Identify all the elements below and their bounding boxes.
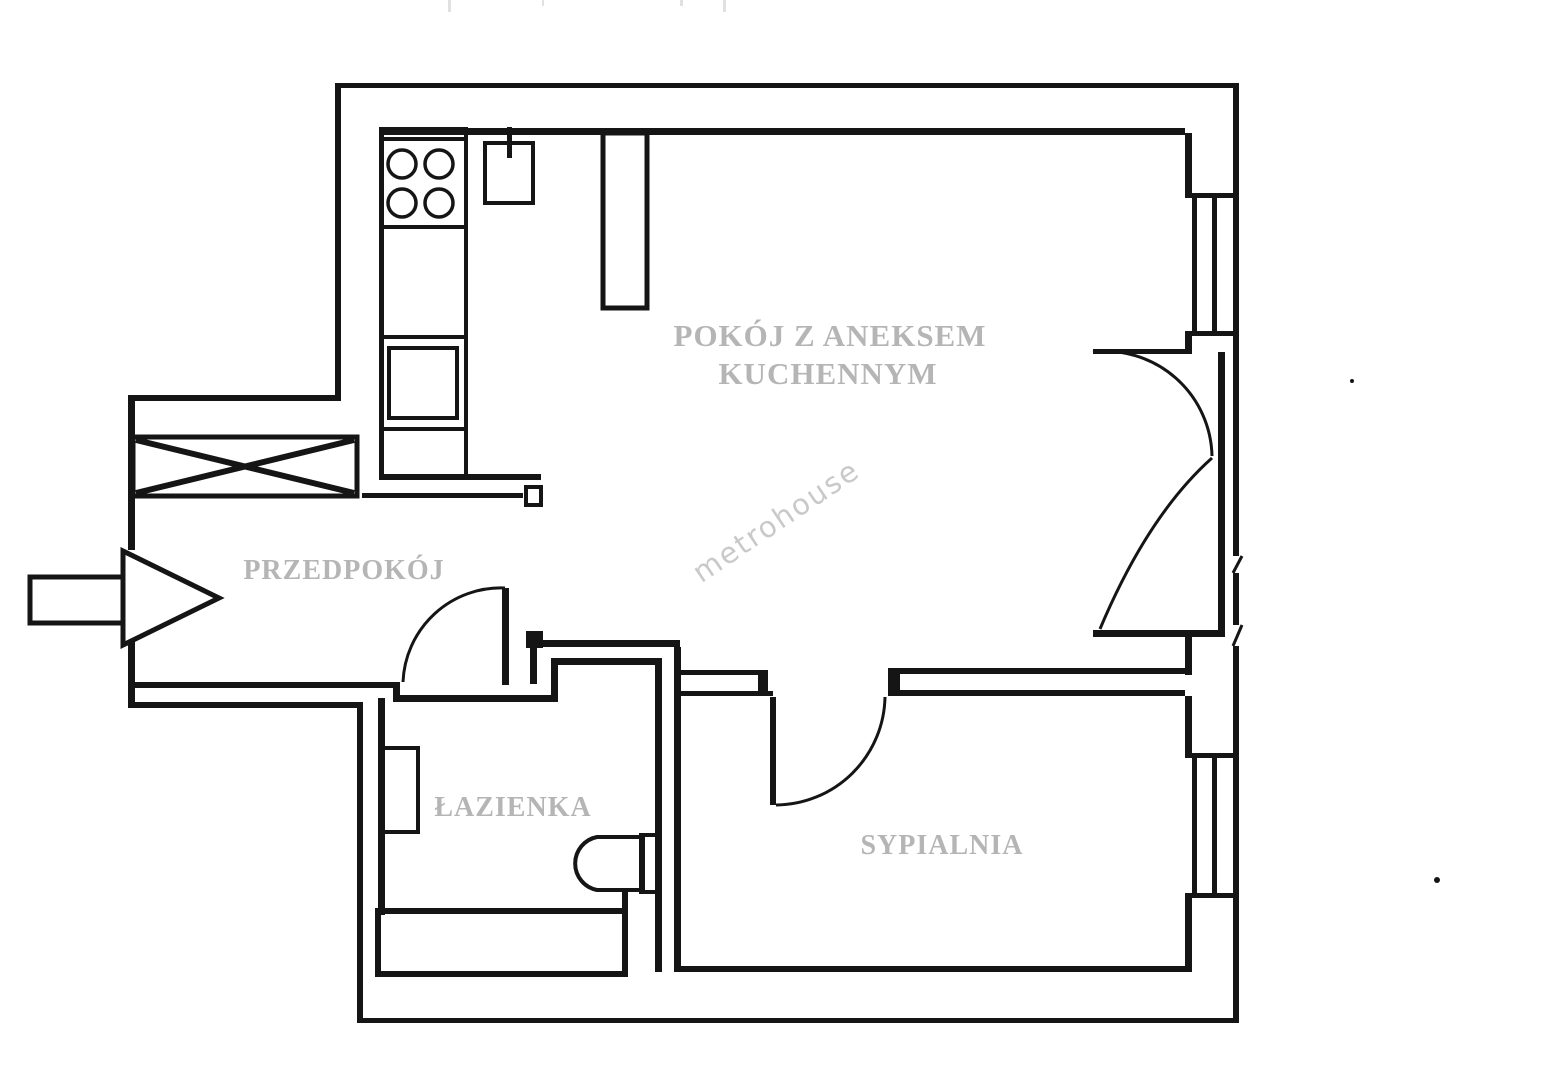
exterior-walls (128, 83, 1242, 1023)
washbasin-icon (382, 748, 418, 832)
edge-tick (680, 0, 683, 6)
window-living-room (1185, 193, 1239, 336)
wall-kitchen-hall-divider (362, 493, 523, 498)
counter-divider (379, 335, 468, 339)
wall-hallway-left-b (128, 636, 135, 708)
floor-plan: POKÓJ Z ANEKSEM KUCHENNYM PRZEDPOKÓJ ŁAZ… (0, 0, 1556, 1080)
edge-tick (542, 0, 544, 6)
toilet-bowl (575, 837, 643, 890)
passage-pillar-top (526, 487, 541, 505)
bathroom-door (403, 588, 509, 685)
arrow-shaft (30, 577, 123, 623)
wall-top-inner (379, 128, 1185, 135)
wall-right-inner-a (1185, 133, 1192, 195)
edge-tick (723, 0, 726, 12)
room-label-hallway: PRZEDPOKÓJ (243, 555, 444, 587)
door-leaf (502, 588, 509, 685)
wall-right-inner-e (1185, 898, 1192, 972)
burner (388, 150, 416, 178)
wall-bathroom-top-inner (400, 695, 558, 702)
wall-bedroom-top-right-lower (893, 690, 1185, 696)
stove-icon (388, 150, 453, 217)
speck (1434, 877, 1440, 883)
wall-left-upper-outer (335, 83, 341, 401)
counter-line (379, 137, 468, 141)
window-frame-line (1192, 197, 1197, 333)
burner (425, 189, 453, 217)
burner (388, 189, 416, 217)
wall-bedroom-bottom-inner (677, 966, 1192, 972)
edge-tick (448, 0, 451, 12)
toilet-icon (575, 835, 658, 892)
wall-bottom-outer (357, 1018, 1239, 1023)
wall-bedroom-top-left-upper (677, 670, 768, 675)
counter-bottom-edge (379, 474, 541, 480)
room-label-living-line2: KUCHENNYM (718, 356, 937, 392)
counter-divider (379, 225, 468, 229)
door-swing (776, 697, 885, 805)
bathtub-icon (378, 892, 625, 974)
wall-bathroom-right-inner (655, 660, 662, 972)
wall-right-outer (1233, 83, 1239, 1023)
balcony-door-swing-top (1093, 351, 1212, 456)
wall-bath-left-outer (357, 702, 363, 1023)
counter-left-edge (379, 127, 384, 479)
bathtub-rim (378, 911, 625, 974)
room-label-bathroom: ŁAZIENKA (434, 792, 591, 824)
wall-bedroom-left (674, 647, 681, 972)
kitchen-counter (379, 127, 541, 480)
counter-appliance-square (389, 348, 457, 418)
bedroom-door-jamb-left (758, 673, 768, 693)
wall-hallway-top (130, 395, 341, 401)
door-swing (403, 588, 505, 682)
kitchen-sink-icon (485, 127, 533, 203)
arrow-head (123, 551, 219, 645)
wall-right-inner-d (1185, 696, 1192, 755)
entrance-arrow-icon (30, 551, 219, 645)
window-frame-line (1212, 197, 1217, 333)
wardrobe-icon (133, 437, 357, 496)
room-label-living-line1: POKÓJ Z ANEKSEM (674, 318, 987, 354)
balcony-double-door (1093, 349, 1225, 637)
balcony-door-frame (1218, 352, 1225, 637)
door-leaf (770, 697, 776, 805)
counter-top-edge (379, 127, 468, 133)
burner (425, 150, 453, 178)
wall-bathroom-top-inner-right (558, 658, 662, 665)
counter-right-edge (464, 127, 468, 477)
speck (1350, 379, 1354, 383)
wall-top-outer (335, 83, 1239, 88)
passage-pillar-bottom (526, 631, 543, 648)
passage-jamb (530, 646, 537, 684)
wall-hallway-bottom-upper-face (135, 682, 400, 688)
bedroom-door (770, 697, 885, 805)
sink-tap (507, 127, 512, 158)
wall-living-bottom (543, 640, 680, 647)
counter-divider (379, 427, 468, 431)
interior-walls (135, 128, 1192, 972)
window-frame-line (1192, 757, 1197, 894)
wall-hallway-bottom (128, 702, 363, 708)
fridge-icon (603, 133, 647, 308)
window-bedroom (1185, 753, 1239, 898)
balcony-door-leaf-bottom (1093, 630, 1225, 637)
window-frame-line (1212, 757, 1217, 894)
bedroom-door-jamb-right (888, 668, 900, 696)
room-label-bedroom: SYPIALNIA (860, 830, 1023, 862)
balcony-door-swing-bottom (1100, 458, 1212, 629)
wall-bedroom-top-right-upper (893, 668, 1192, 674)
